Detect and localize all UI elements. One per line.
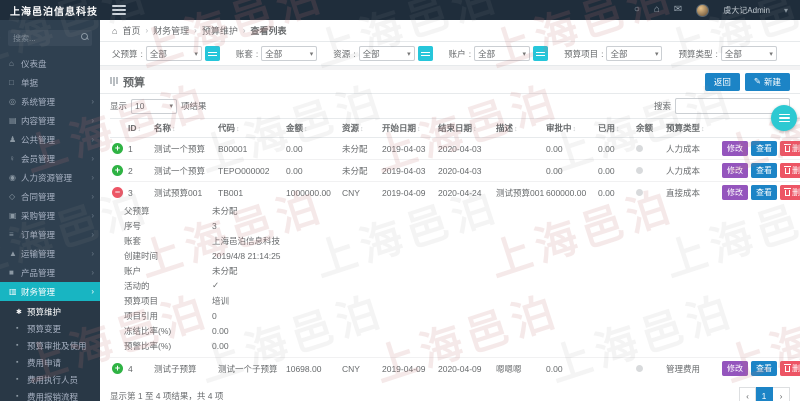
sidebar-item-dashboard[interactable]: ⌂仪表盘 [0, 54, 100, 73]
delete-button[interactable]: 删除 [780, 141, 800, 156]
filter-account: 账户: 全部▾ [449, 46, 548, 61]
balance-dot-icon [636, 167, 643, 174]
filter-parent-budget: 父预算: 全部▾ [112, 46, 220, 61]
finance-submenu: ✱预算维护 ▪预算变更 ▪预算审批及使用 ▪费用申请 ▪费用执行人员 ▪费用报销… [0, 301, 100, 401]
sort-icon: ↕ [417, 126, 421, 133]
col-approving[interactable]: 审批中↕ [544, 119, 596, 138]
purchase-icon: ▣ [9, 211, 21, 220]
sidebar-item-content[interactable]: ▤内容管理› [0, 111, 100, 130]
col-id[interactable]: ID↕ [126, 119, 152, 138]
delete-button[interactable]: 删除 [780, 163, 800, 178]
col-end[interactable]: 结束日期↕ [436, 119, 494, 138]
list-toolbar: 显示 10▾ 项结果 搜索 [100, 94, 800, 118]
filter-budget-item: 预算项目: 全部▾ [564, 46, 662, 61]
prev-page-button[interactable]: ‹ [739, 387, 756, 401]
detail-row: 账户未分配 [124, 263, 800, 278]
detail-row: 项目引用0 [124, 308, 800, 323]
chevron-icon: › [91, 268, 94, 277]
page-size-select[interactable]: 10▾ [131, 99, 177, 114]
pencil-icon: ✎ [754, 76, 761, 87]
col-name[interactable]: 名称↕ [152, 119, 216, 138]
caret-down-icon: ▾ [655, 50, 659, 58]
main-content: ⌂ 首页 › 财务管理 › 预算维护 › 查看列表 父预算: 全部▾ 账套: 全… [100, 20, 800, 401]
finance-icon: ▥ [9, 287, 21, 296]
submenu-budget-maintain[interactable]: ✱预算维护 [0, 303, 100, 320]
detail-row: 父预算未分配 [124, 203, 800, 218]
sort-icon: ↕ [236, 126, 240, 133]
breadcrumb: ⌂ 首页 › 财务管理 › 预算维护 › 查看列表 [100, 20, 800, 42]
col-used[interactable]: 已用↕ [596, 119, 634, 138]
view-button[interactable]: 查看 [751, 361, 777, 376]
topbar-right: ○ ⌂ ✉ 虞大记Admin ▾ [634, 4, 800, 17]
settings-fab-button[interactable] [771, 105, 797, 131]
trash-icon [785, 146, 790, 152]
sidebar-search-input[interactable] [8, 30, 92, 46]
content-icon: ▤ [9, 116, 21, 125]
ledger-select[interactable]: 全部▾ [261, 46, 317, 61]
filter-ledger: 账套: 全部▾ [236, 46, 317, 61]
account-lookup-button[interactable] [533, 46, 548, 61]
system-icon: ◎ [9, 97, 21, 106]
breadcrumb-finance[interactable]: 财务管理 [153, 24, 189, 37]
parent-budget-select[interactable]: 全部▾ [146, 46, 202, 61]
chevron-icon: › [91, 97, 94, 106]
document-icon: □ [9, 78, 21, 87]
chevron-icon: › [91, 135, 94, 144]
filter-resource: 资源: 全部▾ [333, 46, 432, 61]
breadcrumb-current: 查看列表 [251, 24, 287, 37]
edit-button[interactable]: 修改 [722, 141, 748, 156]
staff-icon: ▪ [16, 376, 27, 383]
sidebar-item-orders[interactable]: ≡订单管理› [0, 225, 100, 244]
table-row[interactable]: + 4测试子预算测试一个子预算 10698.00CNY2019-04-09 20… [110, 358, 800, 380]
app-window: 上海邑泊信息科技 ○ ⌂ ✉ 虞大记Admin ▾ ⌂仪表盘 □单据 ◎系统管理… [0, 0, 800, 401]
view-button[interactable]: 查看 [751, 163, 777, 178]
caret-down-icon: ▾ [194, 50, 198, 58]
chevron-icon: › [91, 173, 94, 182]
chevron-icon: › [91, 116, 94, 125]
expand-plus-icon[interactable]: + [112, 143, 123, 154]
detail-row: 序号3 [124, 218, 800, 233]
sidebar: ⌂仪表盘 □单据 ◎系统管理› ▤内容管理› ♟公共管理› ♀会员管理› ◉人力… [0, 20, 100, 401]
submenu-expense-flow[interactable]: ▪费用报销流程 [0, 388, 100, 401]
caret-down-icon: ▾ [310, 50, 314, 58]
order-icon: ≡ [9, 230, 21, 239]
user-menu-caret-icon[interactable]: ▾ [784, 6, 788, 15]
caret-down-icon: ▾ [523, 50, 527, 58]
col-resource[interactable]: 资源↕ [340, 119, 380, 138]
public-icon: ♟ [9, 135, 21, 144]
sort-icon: ↕ [514, 126, 518, 133]
sidebar-item-system[interactable]: ◎系统管理› [0, 92, 100, 111]
expand-plus-icon[interactable]: + [112, 363, 123, 374]
sort-icon: ↕ [573, 126, 577, 133]
budget-item-select[interactable]: 全部▾ [606, 46, 662, 61]
account-select[interactable]: 全部▾ [474, 46, 530, 61]
sort-icon: ↕ [701, 126, 705, 133]
budget-panel: 预算 返回 ✎新建 显示 10▾ 项结果 搜索 [100, 70, 800, 401]
transport-icon: ▲ [9, 249, 21, 258]
brand-title: 上海邑泊信息科技 [0, 3, 108, 18]
budget-table: ID↕ 名称↕ 代码↕ 金额↕ 资源↕ 开始日期↕ 结束日期↕ 描述↕ 审批中↕… [110, 118, 800, 379]
sidebar-item-documents[interactable]: □单据 [0, 73, 100, 92]
submenu-expense-apply[interactable]: ▪费用申请 [0, 354, 100, 371]
panel-grip-icon [110, 77, 118, 86]
sort-icon: ↕ [138, 126, 142, 133]
view-button[interactable]: 查看 [751, 185, 777, 200]
filter-budget-type: 预算类型: 全部▾ [678, 46, 776, 61]
caret-down-icon: ▾ [769, 50, 773, 58]
detail-row: 创建时间2019/4/8 21:14:25 [124, 248, 800, 263]
col-balance[interactable]: 余额 [634, 119, 664, 138]
notification-icon[interactable]: ○ [634, 5, 640, 15]
caret-down-icon: ▾ [407, 50, 411, 58]
sort-icon: ↕ [616, 126, 620, 133]
trash-icon [785, 168, 790, 174]
row-detail-panel: 父预算未分配 序号3 账套上海邑泊信息科技 创建时间2019/4/8 21:14… [110, 203, 800, 358]
sort-icon: ↕ [172, 126, 176, 133]
chevron-icon: › [91, 192, 94, 201]
balance-dot-icon [636, 145, 643, 152]
table-row-expanded[interactable]: − 3测试预算001TB001 1000000.00CNY2019-04-09 … [110, 182, 800, 204]
next-page-button[interactable]: › [773, 387, 790, 401]
filter-bar: 父预算: 全部▾ 账套: 全部▾ 资源: 全部▾ 账户: 全部▾ 预算项目: 全… [100, 42, 800, 66]
home-icon: ⌂ [112, 26, 117, 36]
caret-down-icon: ▾ [170, 102, 174, 110]
col-start[interactable]: 开始日期↕ [380, 119, 436, 138]
results-summary: 显示第 1 至 4 项结果，共 4 项 [110, 390, 223, 401]
status-column-header [110, 119, 126, 138]
sidebar-item-finance[interactable]: ▥财务管理› [0, 282, 100, 301]
username[interactable]: 虞大记Admin [723, 5, 770, 16]
expand-plus-icon[interactable]: + [112, 165, 123, 176]
approval-icon: ▪ [16, 342, 27, 349]
breadcrumb-home[interactable]: 首页 [122, 24, 140, 37]
delete-button[interactable]: 删除 [780, 185, 800, 200]
sidebar-search [8, 30, 92, 46]
collapse-minus-icon[interactable]: − [112, 187, 123, 198]
sidebar-item-members[interactable]: ♀会员管理› [0, 149, 100, 168]
home-icon[interactable]: ⌂ [654, 5, 660, 15]
sidebar-item-purchase[interactable]: ▣采购管理› [0, 206, 100, 225]
resource-lookup-button[interactable] [418, 46, 433, 61]
sidebar-item-public[interactable]: ♟公共管理› [0, 130, 100, 149]
new-button[interactable]: ✎新建 [745, 73, 790, 91]
back-button[interactable]: 返回 [705, 73, 740, 91]
table-footer: 显示第 1 至 4 项结果，共 4 项 ‹ 1 › [100, 379, 800, 401]
panel-title: 预算 [123, 74, 145, 90]
check-icon: ✓ [212, 280, 219, 291]
panel-header: 预算 返回 ✎新建 [100, 70, 800, 94]
sort-icon: ↕ [473, 126, 477, 133]
message-icon[interactable]: ✉ [674, 5, 682, 15]
table-header-row: ID↕ 名称↕ 代码↕ 金额↕ 资源↕ 开始日期↕ 结束日期↕ 描述↕ 审批中↕… [110, 119, 800, 138]
pagination: ‹ 1 › [739, 387, 790, 401]
member-icon: ♀ [9, 154, 21, 163]
gear-icon: ✱ [16, 308, 27, 316]
table-row[interactable]: + 2测试一个预算TEPO000002 0.00未分配2019-04-03 20… [110, 160, 800, 182]
col-desc[interactable]: 描述↕ [494, 119, 544, 138]
dashboard-icon: ⌂ [9, 59, 21, 68]
chevron-icon: › [91, 211, 94, 220]
detail-row: 活动的✓ [124, 278, 800, 293]
submenu-expense-staff[interactable]: ▪费用执行人员 [0, 371, 100, 388]
detail-row: 预警比率(%)0.00 [124, 338, 800, 353]
trash-icon [785, 190, 790, 196]
detail-row: 冻结比率(%)0.00 [124, 323, 800, 338]
contract-icon: ◇ [9, 192, 21, 201]
sort-icon: ↕ [304, 126, 308, 133]
hr-icon: ◉ [9, 173, 21, 182]
parent-budget-lookup-button[interactable] [205, 46, 220, 61]
top-bar: 上海邑泊信息科技 ○ ⌂ ✉ 虞大记Admin ▾ [0, 0, 800, 20]
chevron-icon: › [91, 154, 94, 163]
view-button[interactable]: 查看 [751, 141, 777, 156]
sidebar-item-products[interactable]: ■产品管理› [0, 263, 100, 282]
search-icon [81, 33, 88, 40]
resource-select[interactable]: 全部▾ [359, 46, 415, 61]
table-search-label: 搜索 [654, 100, 671, 112]
apply-icon: ▪ [16, 359, 27, 366]
sidebar-nav: ⌂仪表盘 □单据 ◎系统管理› ▤内容管理› ♟公共管理› ♀会员管理› ◉人力… [0, 54, 100, 301]
sort-icon: ↕ [360, 126, 364, 133]
edit-button[interactable]: 修改 [722, 185, 748, 200]
edit-button[interactable]: 修改 [722, 361, 748, 376]
col-code[interactable]: 代码↕ [216, 119, 284, 138]
col-amount[interactable]: 金额↕ [284, 119, 340, 138]
balance-dot-icon [636, 189, 643, 196]
edit-icon: ▪ [16, 325, 27, 332]
avatar[interactable] [696, 4, 709, 17]
chevron-icon: › [91, 230, 94, 239]
detail-row: 预算项目培训 [124, 293, 800, 308]
detail-row: 账套上海邑泊信息科技 [124, 233, 800, 248]
edit-button[interactable]: 修改 [722, 163, 748, 178]
col-type[interactable]: 预算类型↕ [664, 119, 720, 138]
sidebar-item-transport[interactable]: ▲运输管理› [0, 244, 100, 263]
menu-toggle-icon[interactable] [112, 5, 126, 15]
chevron-icon: › [91, 287, 94, 296]
page-1-button[interactable]: 1 [756, 387, 773, 401]
table-row[interactable]: + 1测试一个预算B00001 0.00未分配2019-04-03 2020-0… [110, 138, 800, 160]
trash-icon [785, 366, 790, 372]
submenu-budget-change[interactable]: ▪预算变更 [0, 320, 100, 337]
delete-button[interactable]: 删除 [780, 361, 800, 376]
balance-dot-icon [636, 365, 643, 372]
budget-type-select[interactable]: 全部▾ [721, 46, 777, 61]
sidebar-item-hr[interactable]: ◉人力资源管理› [0, 168, 100, 187]
flow-icon: ▪ [16, 393, 27, 400]
breadcrumb-budget[interactable]: 预算维护 [202, 24, 238, 37]
product-icon: ■ [9, 268, 21, 277]
chevron-icon: › [91, 249, 94, 258]
submenu-budget-approval[interactable]: ▪预算审批及使用 [0, 337, 100, 354]
sidebar-item-contract[interactable]: ◇合同管理› [0, 187, 100, 206]
